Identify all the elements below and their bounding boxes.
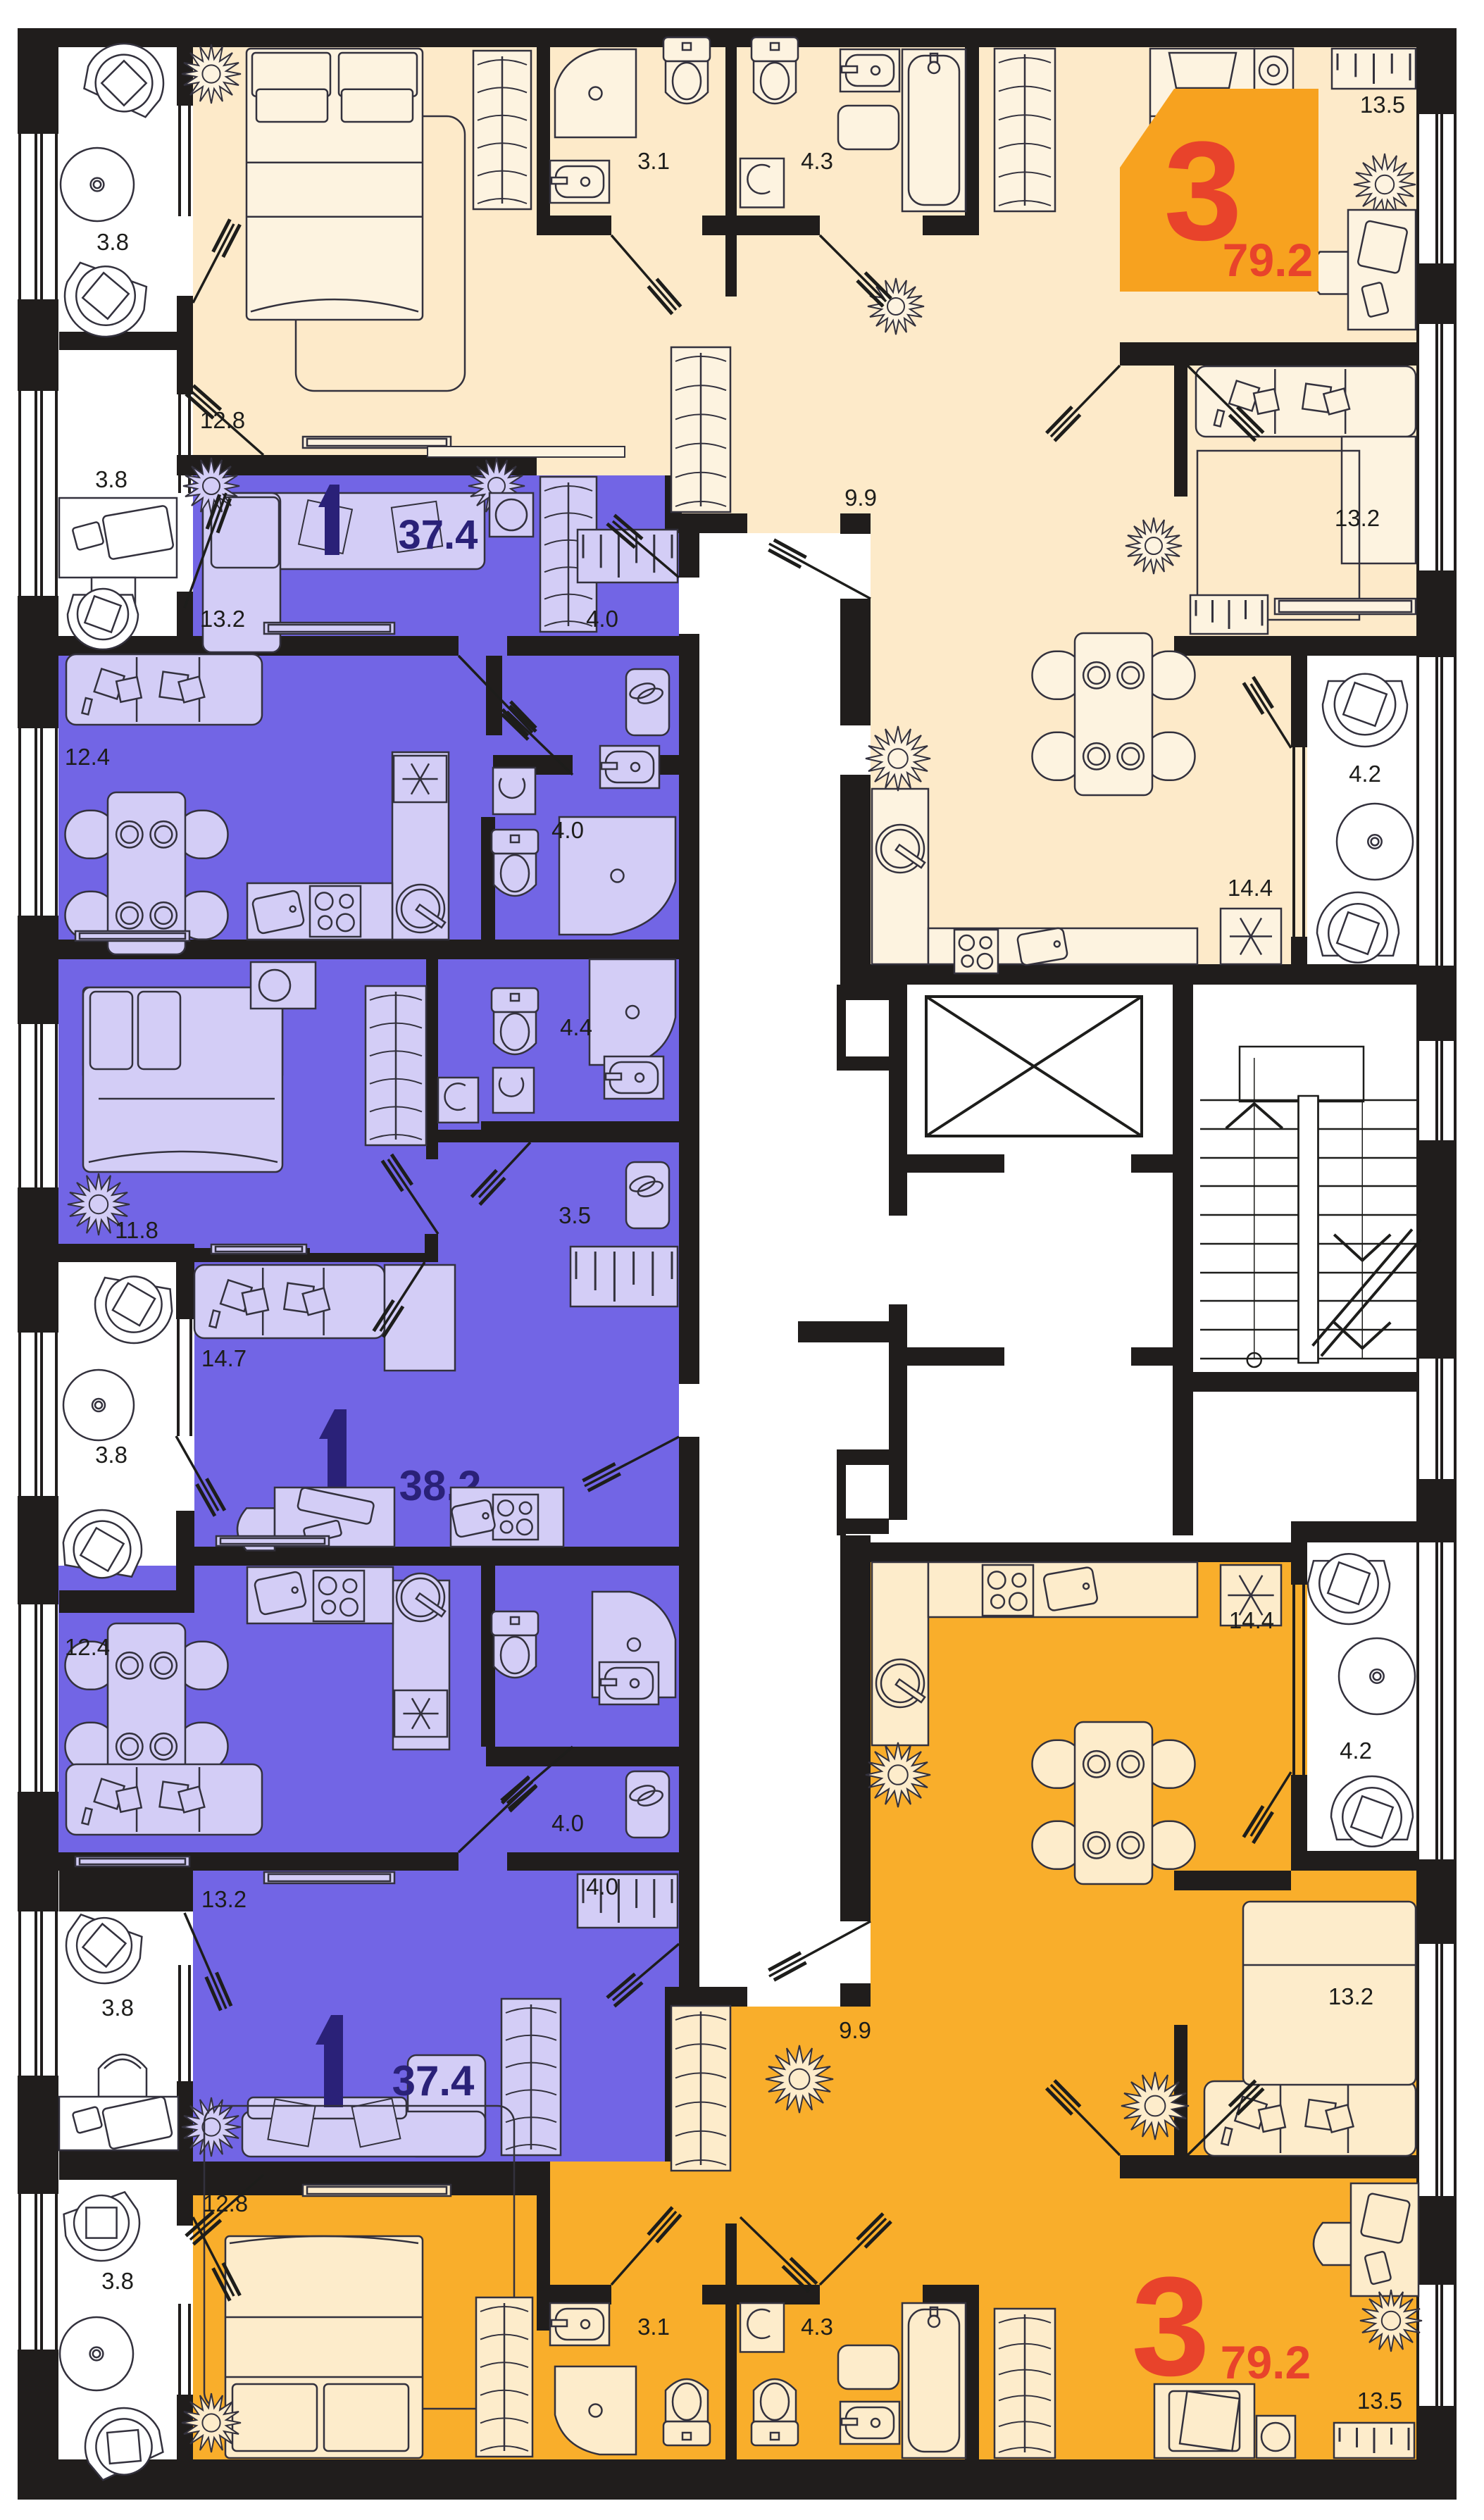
svg-text:4.3: 4.3 xyxy=(801,148,833,174)
svg-text:3.5: 3.5 xyxy=(559,1202,591,1228)
svg-text:3: 3 xyxy=(1131,2248,1209,2405)
svg-text:4.0: 4.0 xyxy=(551,1810,584,1836)
svg-text:9.9: 9.9 xyxy=(839,2017,871,2043)
svg-text:4.4: 4.4 xyxy=(560,1014,592,1040)
svg-text:3.8: 3.8 xyxy=(95,1442,127,1468)
svg-text:4.0: 4.0 xyxy=(551,817,584,843)
svg-text:9.9: 9.9 xyxy=(844,485,877,511)
svg-text:3.8: 3.8 xyxy=(101,2268,134,2294)
svg-text:4.3: 4.3 xyxy=(801,2314,833,2340)
svg-text:3.1: 3.1 xyxy=(637,148,670,174)
svg-text:4.2: 4.2 xyxy=(1340,1738,1372,1764)
svg-text:37.4: 37.4 xyxy=(399,512,478,558)
svg-text:13.2: 13.2 xyxy=(200,606,245,632)
svg-text:79.2: 79.2 xyxy=(1221,2336,1311,2388)
svg-text:14.4: 14.4 xyxy=(1228,875,1273,901)
svg-text:37.4: 37.4 xyxy=(392,2057,475,2104)
svg-text:11.8: 11.8 xyxy=(115,1217,158,1243)
svg-text:3.1: 3.1 xyxy=(637,2314,670,2340)
svg-text:4.2: 4.2 xyxy=(1349,761,1381,787)
svg-text:13.2: 13.2 xyxy=(1328,1983,1373,2009)
svg-text:3.8: 3.8 xyxy=(96,229,129,255)
svg-text:13.5: 13.5 xyxy=(1357,2388,1402,2414)
svg-text:79.2: 79.2 xyxy=(1223,234,1313,286)
svg-text:14.7: 14.7 xyxy=(201,1345,247,1371)
svg-text:13.2: 13.2 xyxy=(201,1886,247,1912)
svg-text:3.8: 3.8 xyxy=(95,466,127,492)
svg-text:4.0: 4.0 xyxy=(586,1873,618,1900)
svg-text:4.0: 4.0 xyxy=(586,606,618,632)
svg-text:12.4: 12.4 xyxy=(65,744,110,770)
svg-text:3.8: 3.8 xyxy=(101,1995,134,2021)
svg-text:13.2: 13.2 xyxy=(1335,505,1380,531)
svg-text:12.4: 12.4 xyxy=(65,1634,110,1660)
svg-text:13.5: 13.5 xyxy=(1360,92,1405,118)
svg-text:14.4: 14.4 xyxy=(1229,1607,1274,1633)
